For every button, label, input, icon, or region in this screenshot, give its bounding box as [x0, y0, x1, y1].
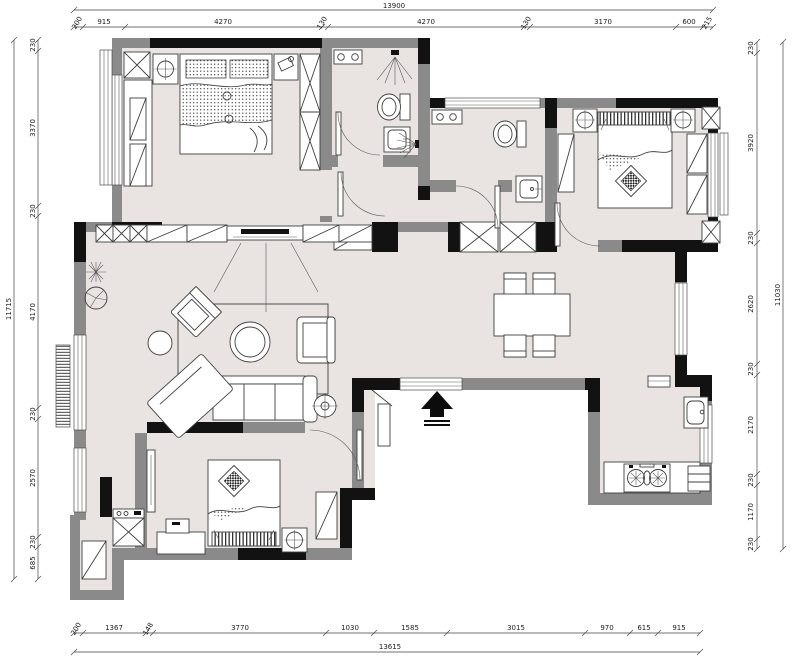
- storage-cabinet: [500, 222, 536, 252]
- closet: [124, 80, 152, 186]
- tv-unit: [227, 226, 303, 240]
- toilet: [378, 94, 411, 120]
- dim-top-seg: 130: [519, 15, 533, 31]
- entry-arrow-lines: [424, 421, 450, 425]
- window-bath2-top: [445, 98, 540, 108]
- dim-bottom-seg: 1367: [105, 624, 123, 632]
- entry-arrow-icon: [421, 391, 453, 417]
- dim-left-seg: 2570: [29, 469, 37, 487]
- window-living-left: [74, 335, 86, 430]
- dim-left-seg: 230: [29, 204, 37, 217]
- double-bed: [180, 54, 272, 154]
- radiator-outside: [56, 345, 70, 427]
- dim-bottom-total: 13615: [379, 643, 401, 651]
- dim-top-total: 13900: [383, 2, 405, 10]
- column-box: [702, 221, 720, 243]
- nightstand-left: [573, 109, 597, 132]
- vanity-counter: [334, 50, 362, 64]
- window-bedroom2-right: [708, 133, 728, 217]
- coffee-table: [230, 322, 270, 362]
- dim-right-total: 11030: [774, 284, 782, 306]
- dim-top-seg: 4270: [214, 18, 232, 26]
- desk: [558, 134, 574, 192]
- nightstand-right: [274, 54, 298, 80]
- stove: [624, 464, 670, 492]
- entrance: [372, 390, 453, 446]
- bed: [598, 112, 672, 208]
- lounge-chair: [297, 317, 335, 363]
- dim-left-seg: 685: [29, 556, 37, 569]
- dining-chair: [504, 273, 526, 295]
- dim-right-seg: 230: [747, 537, 755, 550]
- nightstand: [282, 528, 307, 552]
- dim-line-top: [74, 10, 713, 27]
- dim-left-seg: 230: [29, 38, 37, 51]
- sink: [384, 127, 410, 152]
- dim-bottom-seg: 615: [637, 624, 650, 632]
- dim-right-seg: 2170: [747, 416, 755, 434]
- vanity-counter: [432, 110, 462, 124]
- dim-bottom-seg: 200: [69, 621, 83, 637]
- kitchen-sink: [684, 397, 708, 428]
- dim-top-seg: 600: [682, 18, 695, 26]
- dim-left-seg: 230: [29, 407, 37, 420]
- pillow: [230, 60, 268, 78]
- bath2-door-opening: [456, 180, 498, 192]
- floor-plan-page: 13900 200 915 4270 130 4270 130 3170 600…: [0, 0, 800, 665]
- dim-top-seg: 4270: [417, 18, 435, 26]
- dim-left-seg: 3370: [29, 119, 37, 137]
- dim-top-seg: 3170: [594, 18, 612, 26]
- dim-right-seg: 2620: [747, 295, 755, 313]
- pillow: [186, 60, 226, 78]
- washing-machine: [113, 509, 144, 546]
- dim-left-seg: 230: [29, 535, 37, 548]
- wall-box: [648, 376, 670, 387]
- dim-right-seg: 230: [747, 473, 755, 486]
- dining-table: [494, 294, 570, 336]
- blanket: [180, 84, 272, 126]
- dim-right-seg: 1170: [747, 503, 755, 521]
- window-glazing-outer-topleft: [100, 50, 112, 185]
- dim-top-seg: 915: [97, 18, 110, 26]
- dim-bottom-seg: 1585: [401, 624, 419, 632]
- headboard: [212, 532, 276, 546]
- dim-bottom-seg: 915: [672, 624, 685, 632]
- dim-bottom-seg: 970: [600, 624, 613, 632]
- floor-plan-svg: 13900 200 915 4270 130 4270 130 3170 600…: [0, 0, 800, 665]
- wardrobe: [316, 492, 337, 539]
- wardrobe: [300, 54, 320, 170]
- dim-right-seg: 230: [747, 231, 755, 244]
- dining-chair: [504, 335, 526, 357]
- dim-bottom-seg: 148: [141, 621, 155, 637]
- window-master-left: [112, 75, 122, 185]
- dining-chair: [533, 273, 555, 295]
- dim-right-seg: 3920: [747, 134, 755, 152]
- master-door-opening: [320, 170, 332, 216]
- dim-bottom-seg: 1030: [341, 624, 359, 632]
- storage-box: [124, 52, 150, 78]
- headboard: [598, 112, 672, 125]
- tv-wall-cabinets: [96, 225, 372, 242]
- window-dining-right: [675, 283, 687, 355]
- column-box: [702, 107, 720, 129]
- entry-door-opening: [400, 378, 462, 390]
- appliance: [688, 466, 710, 491]
- side-table: [148, 331, 172, 355]
- bed: [208, 460, 280, 546]
- dim-ticks-top: [71, 7, 716, 30]
- nightstand-left: [153, 54, 178, 84]
- utility-cabinet: [82, 541, 106, 579]
- nightstand-right: [671, 109, 695, 132]
- storage-cabinet: [460, 222, 498, 252]
- dim-bottom-seg: 3015: [507, 624, 525, 632]
- toilet: [494, 121, 527, 147]
- dining-chair: [533, 335, 555, 357]
- dim-bottom-seg: 3770: [231, 624, 249, 632]
- dim-left-total: 11715: [5, 298, 13, 320]
- dim-right-seg: 230: [747, 362, 755, 375]
- wall-cabinet: [147, 450, 155, 512]
- window-corridor-left: [74, 448, 86, 512]
- dim-left-seg: 4170: [29, 303, 37, 321]
- dim-right-seg: 230: [747, 41, 755, 54]
- bath1-door-opening: [338, 155, 383, 167]
- hall-washbasin: [516, 176, 542, 202]
